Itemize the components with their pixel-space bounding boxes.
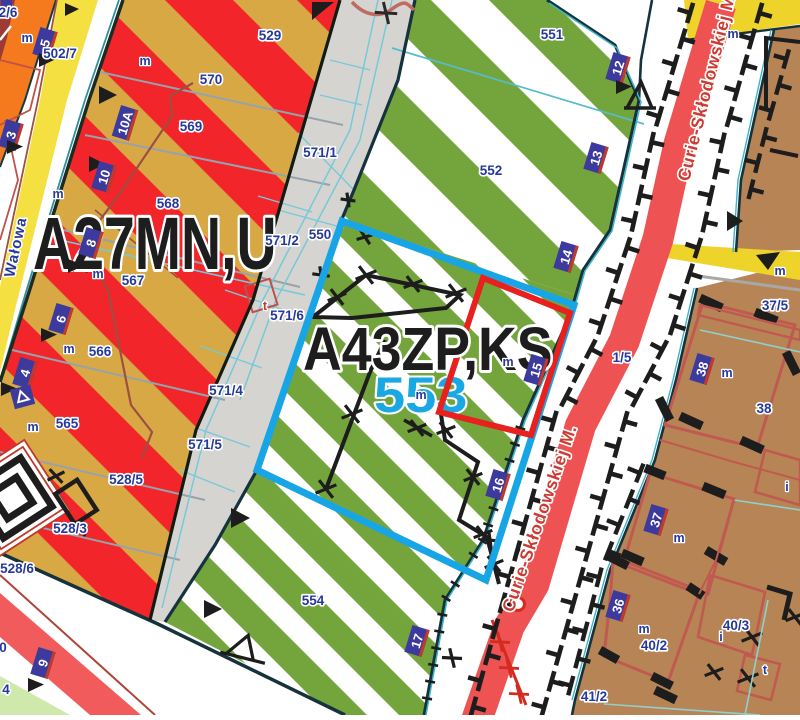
svg-text:571/4: 571/4	[209, 383, 243, 398]
svg-text:m: m	[52, 187, 63, 201]
svg-text:571/6: 571/6	[270, 308, 304, 323]
svg-text:m: m	[638, 622, 649, 636]
svg-text:1/5: 1/5	[613, 350, 632, 365]
svg-text:m: m	[92, 267, 103, 281]
svg-text:528/6: 528/6	[0, 561, 34, 576]
svg-text:m: m	[774, 264, 785, 278]
svg-text:571/1: 571/1	[303, 145, 337, 160]
svg-text:4: 4	[2, 682, 10, 697]
svg-text:40/3: 40/3	[723, 618, 750, 633]
svg-text:i: i	[785, 480, 788, 494]
svg-text:40/2: 40/2	[641, 638, 667, 653]
svg-text:566: 566	[89, 344, 112, 359]
svg-text:m: m	[673, 531, 684, 545]
svg-text:41/2: 41/2	[581, 689, 607, 704]
svg-text:571/2: 571/2	[265, 233, 299, 248]
svg-text:m: m	[27, 420, 38, 434]
svg-text:0: 0	[0, 640, 7, 655]
svg-text:554: 554	[302, 593, 325, 608]
svg-text:m: m	[415, 388, 426, 402]
svg-text:m: m	[63, 342, 74, 356]
svg-text:565: 565	[56, 416, 79, 431]
svg-text:m: m	[21, 31, 32, 45]
svg-text:551: 551	[541, 27, 564, 42]
svg-text:529: 529	[259, 28, 282, 43]
svg-text:m: m	[721, 366, 732, 380]
svg-text:569: 569	[180, 119, 203, 134]
svg-text:i: i	[719, 630, 722, 644]
svg-text:528/3: 528/3	[53, 521, 87, 536]
svg-text:567: 567	[122, 273, 145, 288]
svg-text:m: m	[502, 355, 513, 369]
svg-text:528/5: 528/5	[109, 472, 143, 487]
svg-text:2/6: 2/6	[0, 5, 18, 20]
svg-text:m: m	[139, 54, 150, 68]
svg-text:552: 552	[480, 163, 503, 178]
svg-text:550: 550	[309, 227, 332, 242]
svg-text:570: 570	[200, 72, 223, 87]
svg-text:37/5: 37/5	[762, 298, 789, 313]
svg-text:38: 38	[756, 401, 772, 416]
svg-text:571/5: 571/5	[188, 437, 222, 452]
svg-text:A43ZP,KS: A43ZP,KS	[303, 316, 553, 384]
svg-text:A27MN,U: A27MN,U	[33, 202, 277, 285]
svg-text:568: 568	[157, 196, 180, 211]
svg-text:502/7: 502/7	[43, 46, 77, 61]
